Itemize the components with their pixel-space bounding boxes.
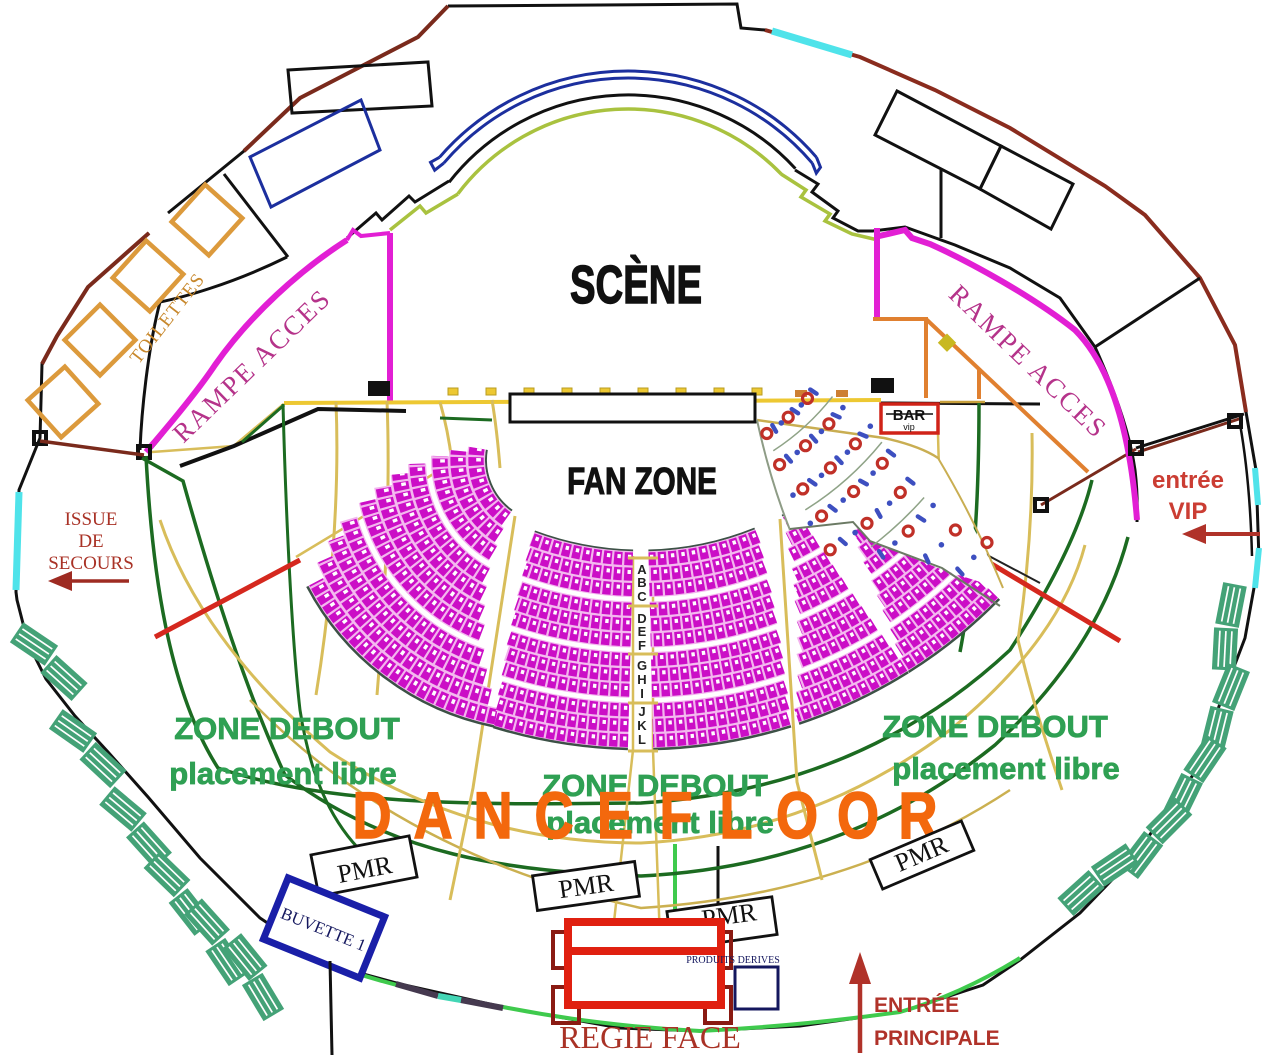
svg-text:O: O: [837, 778, 879, 852]
svg-text:F: F: [659, 778, 692, 852]
svg-text:F: F: [638, 638, 646, 653]
svg-text:ISSUE: ISSUE: [65, 509, 118, 530]
svg-text:I: I: [640, 686, 644, 701]
svg-text:A: A: [413, 778, 452, 852]
svg-text:VIP: VIP: [1169, 498, 1208, 525]
svg-text:ENTRÉE: ENTRÉE: [874, 994, 959, 1017]
svg-text:G: G: [637, 658, 647, 673]
svg-text:B: B: [637, 575, 646, 590]
svg-text:E: E: [597, 778, 633, 852]
svg-text:PRINCIPALE: PRINCIPALE: [874, 1027, 1000, 1050]
svg-text:entrée: entrée: [1152, 467, 1224, 494]
svg-text:SCÈNE: SCÈNE: [570, 255, 702, 315]
svg-text:O: O: [776, 778, 818, 852]
svg-text:L: L: [719, 778, 752, 852]
svg-text:SECOURS: SECOURS: [48, 553, 134, 574]
svg-text:ZONE DEBOUT: ZONE DEBOUT: [174, 711, 400, 746]
svg-text:C: C: [637, 589, 647, 604]
svg-text:N: N: [473, 778, 512, 852]
svg-text:K: K: [637, 718, 647, 733]
svg-text:L: L: [638, 732, 646, 747]
svg-text:vip: vip: [903, 422, 915, 432]
svg-text:E: E: [638, 624, 647, 639]
svg-text:H: H: [637, 672, 646, 687]
svg-text:DE: DE: [78, 531, 103, 552]
svg-text:REGIE FACE: REGIE FACE: [559, 1019, 741, 1055]
svg-text:J: J: [638, 704, 645, 719]
svg-text:C: C: [534, 778, 573, 852]
svg-text:ZONE DEBOUT: ZONE DEBOUT: [882, 709, 1108, 744]
svg-text:FAN ZONE: FAN ZONE: [567, 461, 717, 503]
svg-text:PRODUITS DERIVES: PRODUITS DERIVES: [686, 955, 780, 966]
